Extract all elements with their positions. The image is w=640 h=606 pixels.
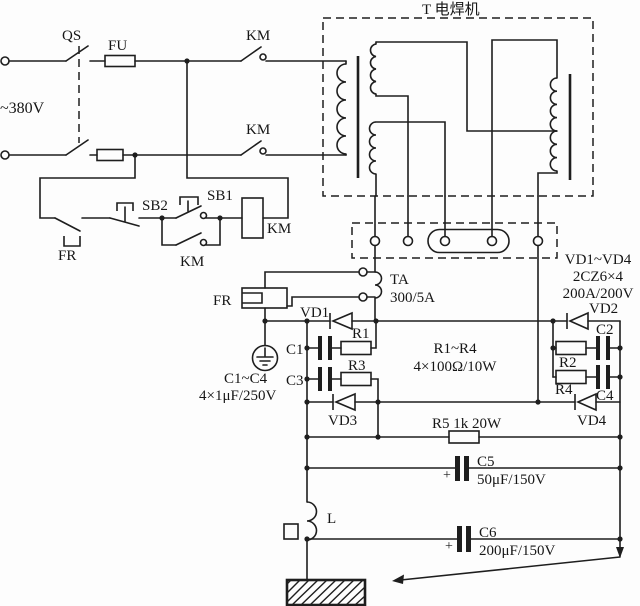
capacitor-c6 (307, 526, 620, 552)
ta-name-label: TA (390, 272, 409, 288)
r3-label: R3 (348, 358, 366, 374)
diode-vd1 (307, 313, 553, 329)
km-aux-label: KM (180, 254, 204, 270)
ta-current-transformer (359, 246, 382, 322)
c-group-label-1: C1~C4 (224, 371, 268, 387)
diode-block-label-2: 2CZ6×4 (573, 269, 624, 285)
c4-label: C4 (596, 388, 614, 404)
diode-block-label-3: 200A/200V (563, 286, 634, 302)
r1-label: R1 (352, 326, 370, 342)
km-coil-label: KM (267, 221, 291, 237)
terminal-strip (352, 196, 557, 258)
c6-value-label: 200μF/150V (479, 543, 556, 559)
diode-block-label-1: VD1~VD4 (565, 252, 632, 268)
r4-label: R4 (555, 382, 573, 398)
sb1-label: SB1 (207, 188, 233, 204)
fu-label: FU (108, 38, 127, 54)
c6-name-label: C6 (479, 525, 497, 541)
fr-heater-label: FR (213, 293, 231, 309)
vd1-label: VD1 (300, 305, 329, 321)
snubber-c3-r3 (307, 367, 378, 402)
qs-label: QS (62, 28, 81, 44)
km-top-label: KM (246, 28, 270, 44)
resistor-r5 (307, 431, 620, 443)
km-main-contacts (241, 47, 346, 155)
schematic-canvas: ~380V QS FU KM KM FR (0, 0, 640, 606)
voltage-label: ~380V (0, 100, 45, 117)
km-aux-contact (162, 218, 220, 246)
transformer (323, 18, 593, 196)
capacitor-c5 (307, 456, 620, 481)
c3-label: C3 (286, 373, 304, 389)
workpiece (287, 580, 365, 605)
transformer-title: T 电焊机 (422, 1, 480, 18)
l-label: L (327, 511, 336, 527)
km-coil (242, 198, 263, 238)
welding-machine-schematic: ~380V QS FU KM KM FR (0, 0, 640, 606)
diode-vd3 (307, 394, 575, 410)
km-bottom-label: KM (246, 122, 270, 138)
fr-contact (55, 218, 110, 246)
c5-value-label: 50μF/150V (477, 472, 546, 488)
r-group-label-1: R1~R4 (433, 341, 477, 357)
inductor-l (284, 502, 317, 540)
c6-plus: + (445, 539, 453, 554)
sb2-label: SB2 (142, 198, 168, 214)
fuse-fu (90, 56, 241, 161)
c5-name-label: C5 (477, 454, 495, 470)
vd3-label: VD3 (328, 413, 357, 429)
c5-plus: + (443, 468, 451, 483)
c1-label: C1 (286, 342, 304, 358)
c2-label: C2 (596, 322, 614, 338)
fr-contact-label: FR (58, 248, 76, 264)
ground-symbol (253, 346, 278, 371)
r2-label: R2 (559, 355, 577, 371)
control-circuit-wires (40, 61, 288, 218)
c-group-label-2: 4×1μF/250V (199, 388, 277, 404)
vd2-label: VD2 (589, 301, 618, 317)
ta-ratio-label: 300/5A (390, 290, 435, 306)
r-group-label-2: 4×100Ω/10W (414, 359, 498, 375)
r5-label: R5 1k 20W (432, 416, 502, 432)
vd4-label: VD4 (577, 413, 607, 429)
